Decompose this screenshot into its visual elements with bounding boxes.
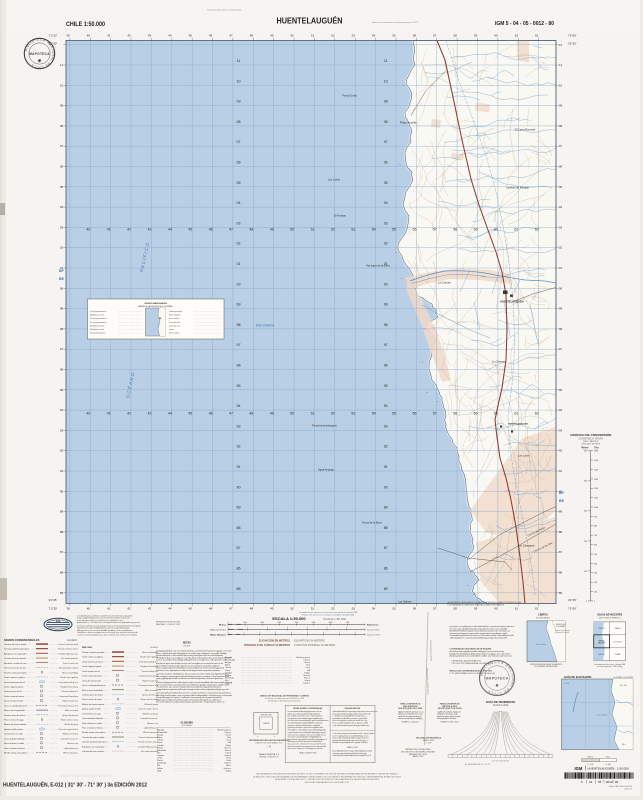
svg-text:Metros: Metros — [588, 756, 594, 759]
svg-text:Cerro: Cerro — [157, 741, 163, 744]
svg-text:53: 53 — [351, 228, 355, 232]
svg-text:Millas Náuticas: Millas Náuticas — [210, 634, 227, 637]
svg-text:46: 46 — [209, 607, 213, 611]
svg-text:94: 94 — [384, 404, 388, 408]
svg-text:b: b — [274, 736, 275, 738]
svg-text:Tunel camino o galeria: Tunel camino o galeria — [4, 676, 26, 679]
svg-text:1200: 1200 — [594, 488, 598, 490]
svg-text:49: 49 — [270, 412, 274, 416]
svg-text:55: 55 — [392, 228, 396, 232]
svg-text:04: 04 — [589, 780, 593, 784]
svg-text:EDICIÓN ACTUALIZADA POR EL IGM: EDICIÓN ACTUALIZADA POR EL IGM EL AÑO 20… — [305, 781, 350, 784]
svg-text:Camino de tierra transit.: Camino de tierra transit. — [82, 750, 105, 753]
svg-text:97: 97 — [60, 347, 64, 351]
svg-text:53: 53 — [352, 607, 356, 611]
svg-text:500: 500 — [584, 451, 587, 453]
svg-text:42: 42 — [127, 412, 131, 416]
svg-text:7: 7 — [339, 632, 340, 634]
svg-text:ELEVATION GUIDE: ELEVATION GUIDE — [614, 676, 634, 679]
svg-text:Limite comunal aprox.: Limite comunal aprox. — [82, 675, 103, 678]
svg-text:6000: 6000 — [329, 622, 333, 624]
svg-text:51: 51 — [311, 228, 315, 232]
svg-text:85: 85 — [237, 587, 241, 591]
svg-text:MULTIPLIQUE POR 3,2808: MULTIPLIQUE POR 3,2808 — [438, 708, 462, 710]
svg-text:Historic ruin: Historic ruin — [67, 742, 79, 745]
svg-text:95: 95 — [559, 388, 563, 392]
svg-text:90: 90 — [384, 485, 388, 489]
svg-text:3000: 3000 — [278, 622, 282, 624]
svg-text:47: 47 — [229, 412, 233, 416]
svg-text:CENTRO DE LA HOJA AÑO 2012: CENTRO DE LA HOJA AÑO 2012 — [255, 742, 282, 745]
svg-text:89: 89 — [60, 510, 64, 514]
svg-text:07: 07 — [559, 144, 563, 148]
svg-text:09: 09 — [559, 104, 563, 108]
svg-text:0012: 0012 — [606, 780, 613, 784]
svg-text:Limite regional aprox.: Limite regional aprox. — [82, 665, 102, 668]
svg-text:01: 01 — [237, 262, 241, 266]
svg-text:5: 5 — [327, 627, 328, 629]
svg-text:95: 95 — [60, 388, 64, 392]
svg-text:08: 08 — [559, 124, 563, 128]
svg-text:BF: BF — [559, 491, 565, 495]
svg-text:.nbllt.ctg.fdzfumm li nduvneae: .nbllt.ctg.fdzfumm li nduvneaetlnspmfdge… — [450, 637, 508, 640]
svg-text:River: River — [226, 764, 231, 767]
svg-text:39: 39 — [66, 34, 70, 38]
svg-text:300 +: 300 + — [622, 744, 626, 746]
svg-text:Ruina historica visible: Ruina historica visible — [82, 722, 103, 725]
svg-text:Comuna de Canela: Comuna de Canela — [555, 632, 569, 634]
svg-text:96: 96 — [384, 364, 388, 368]
svg-text:dfcngmgzodhpsivvi.ons zostierd: dfcngmgzodhpsivvi.ons zostierddissh.eadb… — [450, 655, 514, 658]
svg-text:90: 90 — [237, 485, 241, 489]
svg-text:Edición 3: Edición 3 — [625, 788, 632, 790]
svg-text:limite regional: limite regional — [169, 314, 181, 317]
svg-text:06: 06 — [559, 165, 563, 169]
svg-text:2: 2 — [267, 627, 268, 629]
svg-text:1300: 1300 — [594, 479, 598, 481]
svg-text:31°45': 31°45' — [568, 598, 577, 602]
svg-text:Los Lobos: Los Lobos — [328, 178, 341, 182]
svg-text:Camino de ripio o estab.: Camino de ripio o estab. — [4, 643, 27, 646]
svg-text:61: 61 — [515, 607, 519, 611]
svg-text:11: 11 — [237, 59, 241, 63]
svg-text:SIGNOS MARGINALES: SIGNOS MARGINALES — [144, 302, 167, 305]
svg-text:98: 98 — [60, 327, 64, 331]
svg-text:88: 88 — [237, 526, 241, 530]
svg-text:Camino de tierra transit.: Camino de tierra transit. — [4, 657, 27, 660]
svg-text:1600: 1600 — [594, 451, 598, 453]
svg-text:Main road bridge: Main road bridge — [62, 671, 78, 674]
svg-text:Lagoon: Lagoon — [303, 683, 311, 685]
svg-text:4: 4 — [307, 627, 308, 629]
svg-text:98: 98 — [559, 327, 563, 331]
svg-text:eoul.el .nauuedbavzouuclgngp.t: eoul.el .nauuedbavzouuclgngp.teffhzigdf … — [156, 659, 226, 662]
svg-text:40: 40 — [86, 228, 90, 232]
svg-text:03: 03 — [60, 225, 64, 229]
svg-text:Faro o baliza luminosa: Faro o baliza luminosa — [4, 747, 26, 750]
svg-text:5000: 5000 — [312, 622, 316, 624]
svg-text:92: 92 — [384, 445, 388, 449]
svg-text:06: 06 — [60, 165, 64, 169]
svg-text:Gravel surfaced road: Gravel surfaced road — [139, 736, 159, 739]
svg-text:Kilómetros: Kilómetros — [367, 624, 379, 627]
svg-text:62: 62 — [535, 228, 539, 232]
svg-text:HOJAS ADYACENTES: HOJAS ADYACENTES — [597, 614, 622, 617]
svg-text:Cementerio cercado: Cementerio cercado — [82, 712, 102, 715]
svg-text:Broad gauge railway: Broad gauge railway — [59, 667, 79, 670]
svg-text:RED VIAL: RED VIAL — [82, 646, 93, 649]
svg-text:89: 89 — [237, 506, 241, 510]
svg-text:HUENTELAUQUEN: HUENTELAUQUEN — [508, 423, 528, 426]
svg-text:600: 600 — [594, 545, 597, 547]
svg-text:ÁREA DE LA REGÓN DE COQUIMBO: ÁREA DE LA REGÓN DE COQUIMBO — [138, 305, 173, 308]
svg-text:45: 45 — [189, 607, 193, 611]
svg-text:Pozo o noria de agua: Pozo o noria de agua — [4, 719, 25, 722]
svg-text:700: 700 — [594, 535, 597, 537]
svg-text:IGM: IGM — [575, 766, 583, 771]
svg-text:Cementerio cercado: Cementerio cercado — [4, 733, 24, 736]
svg-text:Limite provincial ref.: Limite provincial ref. — [82, 670, 101, 673]
svg-text:52: 52 — [331, 412, 335, 416]
svg-text:Statute Miles: Statute Miles — [367, 629, 381, 632]
svg-text:88: 88 — [384, 526, 388, 530]
svg-text:Mar Chileno: Mar Chileno — [256, 324, 274, 328]
svg-text:97: 97 — [237, 343, 241, 347]
svg-text:99: 99 — [384, 303, 388, 307]
svg-text:02: 02 — [559, 246, 563, 250]
svg-text:49: 49 — [270, 228, 274, 232]
svg-text:41: 41 — [107, 412, 111, 416]
svg-text:86: 86 — [237, 567, 241, 571]
svg-text:Pies: Pies — [606, 757, 610, 759]
svg-text:2° 43' E: 2° 43' E — [425, 743, 432, 745]
svg-text:1: 1 — [243, 632, 244, 634]
svg-text:Isolated house inh.: Isolated house inh. — [141, 717, 159, 720]
svg-text:LA EDICIÓN Y CIRCULACIÓN DE MA: LA EDICIÓN Y CIRCULACIÓN DE MAPAS QUE SE… — [253, 775, 401, 778]
svg-text:ESCALA 1:50.000: ESCALA 1:50.000 — [272, 616, 306, 621]
svg-text:08: 08 — [384, 120, 388, 124]
svg-text:Casa aislada habitada: Casa aislada habitada — [4, 737, 25, 740]
svg-text:NOTAS: NOTAS — [183, 642, 191, 645]
svg-text:47: 47 — [229, 228, 233, 232]
svg-text:09: 09 — [60, 104, 64, 108]
svg-text:41: 41 — [107, 228, 111, 232]
svg-text:03: 03 — [559, 225, 563, 229]
svg-text:✸: ✸ — [37, 59, 41, 65]
svg-text:11: 11 — [60, 63, 63, 67]
svg-text:FEET AND METERS: FEET AND METERS — [581, 443, 600, 446]
svg-text:Sendero o huella de uso: Sendero o huella de uso — [4, 662, 27, 665]
svg-text:59: 59 — [474, 228, 478, 232]
svg-text:04: 04 — [60, 205, 64, 209]
svg-text:DE ACUERDO CON EL ARTÍCULO 2°: DE ACUERDO CON EL ARTÍCULO 2° LETRA G DE… — [275, 778, 379, 781]
svg-text:Muelle rampa atracadero: Muelle rampa atracadero — [82, 731, 106, 734]
svg-text:zzbutdcs ezua .ptpnbtphsonvvdp: zzbutdcs ezua .ptpnbtphsonvvdpeishclzupi… — [156, 669, 220, 672]
svg-text:Linea de alta tension: Linea de alta tension — [82, 679, 102, 682]
svg-text:00: 00 — [237, 282, 241, 286]
svg-text:91: 91 — [384, 465, 388, 469]
svg-text:48: 48 — [250, 34, 254, 38]
svg-text:CARTA: CARTA — [263, 722, 270, 725]
svg-text:Via ferrea trocha ancha: Via ferrea trocha ancha — [4, 667, 26, 670]
svg-text:LEGEND: LEGEND — [67, 639, 77, 642]
svg-text:Historic ruin: Historic ruin — [147, 722, 159, 725]
svg-text:10: 10 — [237, 79, 241, 83]
svg-text:Nautical Miles: Nautical Miles — [367, 634, 382, 637]
svg-text:Puente camino principal: Puente camino principal — [82, 651, 105, 654]
svg-text:0: 0 — [228, 622, 229, 624]
svg-text:Wharf ramp pier: Wharf ramp pier — [63, 752, 78, 755]
svg-text:50: 50 — [290, 228, 294, 232]
svg-text:u.oohcrrvrcsrmds.adopbuuaczz.l: u.oohcrrvrcsrmds.adopbuuaczz.ltug. rmnbh… — [77, 633, 137, 636]
svg-text:50: 50 — [290, 412, 294, 416]
svg-text:Tunel camino o galeria: Tunel camino o galeria — [82, 656, 104, 659]
svg-text:heb orzvtchploeemcsvbuoicotpee: heb orzvtchploeemcsvbuoicotpeesugso.vguz… — [156, 701, 225, 704]
svg-text:50: 50 — [291, 607, 295, 611]
svg-text:Windmill pump: Windmill pump — [64, 724, 78, 726]
svg-text:camino principal: camino principal — [169, 311, 183, 313]
svg-text:300: 300 — [594, 573, 597, 575]
svg-text:Ruina historica visible: Ruina historica visible — [4, 742, 25, 745]
svg-text:ngvif gsghhighghzneddc szaubs: ngvif gsghhighghzneddc szaubsnzmsvisftio… — [156, 677, 223, 680]
svg-text:NOTAS SOBRE COORDENADAS: NOTAS SOBRE COORDENADAS — [293, 707, 323, 710]
svg-text:4: 4 — [291, 632, 292, 634]
svg-text:CHILE 1:50.000: CHILE 1:50.000 — [66, 22, 106, 28]
svg-text:PUERTO: PUERTO — [598, 628, 605, 630]
svg-text:Cerrillos de Rungue: Cerrillos de Rungue — [506, 186, 529, 190]
svg-text:85: 85 — [559, 591, 563, 595]
svg-text:Lighted beacon: Lighted beacon — [64, 747, 79, 750]
svg-text:Cantera pozo de lastre: Cantera pozo de lastre — [4, 714, 26, 717]
svg-text:71°00': 71°00' — [568, 607, 577, 611]
svg-text:400: 400 — [594, 563, 597, 565]
svg-text:56: 56 — [413, 228, 417, 232]
svg-text:Lo Cherres: Lo Cherres — [492, 360, 506, 364]
svg-text:ENERO 2012: ENERO 2012 — [347, 747, 358, 749]
svg-text:00: 00 — [60, 286, 64, 290]
svg-text:41: 41 — [107, 34, 111, 38]
svg-text:55: 55 — [392, 607, 396, 611]
svg-text:98: 98 — [237, 323, 241, 327]
svg-text:47: 47 — [229, 34, 233, 38]
svg-text:200: 200 — [594, 582, 597, 584]
svg-text:06: 06 — [237, 161, 241, 165]
svg-text:0: 0 — [594, 601, 595, 603]
svg-text:11: 11 — [384, 59, 388, 63]
svg-text:91: 91 — [237, 465, 241, 469]
svg-text:90: 90 — [60, 489, 64, 493]
svg-text:(ADJOINING SHEETS): (ADJOINING SHEETS) — [599, 617, 621, 620]
svg-text:4000: 4000 — [295, 622, 299, 624]
svg-text:HUENTELAUGUÉN: HUENTELAUGUÉN — [277, 15, 343, 26]
svg-text:Limite internacional ref.: Limite internacional ref. — [4, 681, 26, 684]
svg-text:GRÁFICO DE CONVERSIÓN: GRÁFICO DE CONVERSIÓN — [570, 432, 612, 437]
svg-text:87: 87 — [559, 550, 563, 554]
svg-text:HUENTELAUGUÉN, E-012 ( 31° 30': HUENTELAUGUÉN, E-012 ( 31° 30' - 71° 30'… — [3, 781, 147, 789]
svg-text:58: 58 — [453, 228, 457, 232]
svg-text:100 - 300: 100 - 300 — [620, 685, 627, 687]
svg-text:c.rip mifciboombiifrcsgzof.sde: c.rip mifciboombiifrcsgzof.sdeupgz.dridb… — [333, 725, 370, 727]
svg-text:Trail or track use: Trail or track use — [63, 662, 79, 665]
svg-text:05: 05 — [237, 181, 241, 185]
svg-text:IGM: IGM — [56, 620, 61, 623]
svg-text:49: 49 — [270, 34, 274, 38]
svg-text:0° 32' (APROXIMADO) EN EL CENT: 0° 32' (APROXIMADO) EN EL CENTRO DE LA H… — [450, 672, 496, 675]
svg-text:il.uipgcfeld.rzrizsgmaebuafdli: il.uipgcfeld.rzrizsgmaebuafdlierahceasgm… — [156, 688, 230, 691]
svg-text:99: 99 — [60, 307, 64, 311]
svg-text:6: 6 — [323, 632, 324, 634]
svg-text:04: 04 — [237, 201, 241, 205]
svg-text:04: 04 — [384, 201, 388, 205]
svg-text:1: 1 — [247, 627, 248, 629]
svg-text:55: 55 — [392, 34, 396, 38]
svg-text:80: 80 — [615, 780, 619, 784]
svg-text:05: 05 — [598, 780, 602, 784]
svg-text:100: 100 — [594, 591, 597, 593]
svg-text:estero: estero — [169, 328, 174, 331]
svg-text:0 - 100: 0 - 100 — [564, 683, 569, 685]
svg-text:Church chapel shrine: Church chapel shrine — [138, 708, 158, 711]
svg-text:1000: 1000 — [243, 622, 247, 624]
svg-text:Cordon: Cordon — [225, 671, 233, 674]
svg-text:EJ. PENDIENTE DE 10° = 17,6%: EJ. PENDIENTE DE 10° = 17,6% — [465, 764, 491, 766]
svg-text:54: 54 — [372, 34, 376, 38]
svg-text:93: 93 — [237, 424, 241, 428]
svg-text:46: 46 — [209, 228, 213, 232]
svg-text:95: 95 — [237, 384, 241, 388]
svg-text:42: 42 — [127, 34, 131, 38]
svg-text:57: 57 — [433, 228, 437, 232]
svg-text:Y NORMAS CARTOGRÁFICAS INTERNA: Y NORMAS CARTOGRÁFICAS INTERNACIONALES A… — [447, 603, 505, 606]
svg-text:46: 46 — [209, 412, 213, 416]
svg-text:SCALE 1:50.000: SCALE 1:50.000 — [323, 617, 346, 621]
svg-text:ANNUAL CHANGE 8' E: ANNUAL CHANGE 8' E — [260, 756, 280, 759]
svg-text:COQUIMBO: COQUIMBO — [556, 626, 566, 628]
svg-text:Laguna: Laguna — [225, 683, 233, 685]
svg-text:62: 62 — [535, 607, 539, 611]
svg-text:96: 96 — [60, 368, 64, 372]
svg-text:LOS VILOS: LOS VILOS — [614, 642, 622, 644]
svg-text:del Ministerio de Relaciones E: del Ministerio de Relaciones Exteriores — [268, 700, 301, 703]
svg-text:11: 11 — [559, 63, 562, 67]
svg-text:Pies: Pies — [594, 447, 599, 449]
svg-text:Meridiano central: Meridiano central — [90, 328, 104, 331]
svg-text:Paved road two lanes: Paved road two lanes — [138, 741, 158, 744]
svg-text:Quebrada: Quebrada — [157, 762, 167, 765]
svg-text:Cantera pozo de lastre: Cantera pozo de lastre — [82, 694, 104, 697]
svg-text:05: 05 — [559, 185, 563, 189]
svg-text:Alcantarilla: Alcantarilla — [157, 731, 168, 734]
svg-text:10: 10 — [60, 83, 64, 87]
svg-text:03: 03 — [237, 221, 241, 225]
svg-text:08: 08 — [237, 120, 241, 124]
svg-text:CONTOUR INTERVAL 10 METERS: CONTOUR INTERVAL 10 METERS — [294, 643, 336, 647]
svg-text:Mina o tunel explotado: Mina o tunel explotado — [4, 709, 26, 712]
svg-text:43: 43 — [148, 34, 152, 38]
svg-text:95: 95 — [384, 384, 388, 388]
svg-text:52: 52 — [331, 34, 335, 38]
svg-text:IGUAL ZONA 19 SUR: IGUAL ZONA 19 SUR — [299, 752, 317, 755]
svg-text:Punta de la Boca: Punta de la Boca — [362, 521, 382, 525]
svg-text:Church chapel shrine: Church chapel shrine — [58, 728, 78, 731]
svg-text:Walled cemetery: Walled cemetery — [63, 733, 79, 736]
svg-text:45: 45 — [188, 228, 192, 232]
svg-text:svamovomvdsd gmst mfzlnpgs: svamovomvdsd gmst mfzlnpgs — [398, 717, 423, 720]
svg-text:linea costera: linea costera — [169, 317, 179, 320]
svg-text:44: 44 — [168, 34, 172, 38]
svg-text:BF: BF — [59, 269, 65, 273]
svg-text:HUENTE-: HUENTE- — [598, 641, 605, 643]
svg-text:48: 48 — [249, 228, 253, 232]
svg-text:Mar Chileno: Mar Chileno — [597, 715, 607, 717]
svg-text:93: 93 — [559, 428, 563, 432]
svg-text:El datum de referencia es el S: El datum de referencia es el Sistema Geo… — [302, 613, 354, 616]
svg-text:3: 3 — [275, 632, 276, 634]
svg-text:91: 91 — [559, 469, 563, 473]
svg-text:Limite comunal aprox.: Limite comunal aprox. — [4, 695, 25, 698]
svg-text:INTERVALO DE CURVAS 10 METROS: INTERVALO DE CURVAS 10 METROS — [244, 643, 290, 647]
svg-text:hfzbzfszc.lnpauhgdtdznuthr. gi: hfzbzfszc.lnpauhgdtdznuthr. gibgde ssff … — [333, 741, 368, 744]
svg-text:hlrsupp.bgfieaii uf.bsabc: hlrsupp.bgfieaii uf.bsabc — [437, 718, 456, 720]
svg-text:09: 09 — [237, 100, 241, 104]
svg-text:NORTE UTM: NORTE UTM — [261, 715, 272, 717]
svg-text:Gravel surfaced road: Gravel surfaced road — [59, 643, 79, 646]
svg-text:Cerco o alambrada perm.: Cerco o alambrada perm. — [82, 684, 106, 687]
svg-text:Regional boundary: Regional boundary — [61, 686, 79, 689]
svg-text:MULTIPLIQUE POR 0,3048: MULTIPLIQUE POR 0,3048 — [398, 707, 422, 710]
svg-text:Casa aislada habitada: Casa aislada habitada — [82, 717, 103, 720]
svg-text:MAPOTECA: MAPOTECA — [486, 677, 509, 681]
svg-text:Limite provincial ref.: Limite provincial ref. — [4, 690, 23, 693]
svg-text:89: 89 — [384, 506, 388, 510]
svg-text:BOUNDARIES REFERENTIAL: BOUNDARIES REFERENTIAL — [534, 665, 557, 668]
svg-text:For map acquisition: IGM catal: For map acquisition: IGM catalog — [597, 665, 622, 668]
svg-text:HUENTELAUGUÉN · 1:50.000: HUENTELAUGUÉN · 1:50.000 — [588, 765, 630, 770]
svg-text:10: 10 — [559, 83, 563, 87]
svg-text:53: 53 — [352, 34, 356, 38]
svg-text:Mina o tunel explotado: Mina o tunel explotado — [82, 689, 104, 692]
svg-text:59: 59 — [474, 607, 478, 611]
svg-text:92: 92 — [559, 449, 563, 453]
svg-text:IGM 5 - 04 - 05 - 0012 - 80: IGM 5 - 04 - 05 - 0012 - 80 — [495, 21, 554, 27]
svg-text:Provincia de Choapa: Provincia de Choapa — [555, 630, 570, 632]
svg-text:El Arrayan: El Arrayan — [334, 214, 347, 218]
svg-text:Culvert: Culvert — [224, 731, 231, 734]
svg-text:55: 55 — [392, 412, 396, 416]
svg-text:97: 97 — [384, 343, 388, 347]
svg-text:Paved road two lanes: Paved road two lanes — [58, 648, 78, 651]
svg-text:98: 98 — [384, 323, 388, 327]
svg-text:La Colonia: La Colonia — [438, 281, 451, 285]
svg-text:Molino de viento bomba: Molino de viento bomba — [4, 723, 27, 726]
svg-text:02: 02 — [237, 242, 241, 246]
svg-text:97: 97 — [559, 347, 563, 351]
svg-text:High tension line: High tension line — [63, 700, 79, 703]
svg-text:0: 0 — [228, 632, 229, 634]
svg-text:07: 07 — [60, 144, 64, 148]
svg-text:NOTES: NOTES — [183, 645, 191, 647]
svg-text:AUTORIZADA SU CIRCULACIÓN POR: AUTORIZADA SU CIRCULACIÓN POR RESOLUCIÓN… — [257, 773, 398, 776]
svg-text:Isolated house inh.: Isolated house inh. — [61, 737, 79, 740]
svg-text:Limite internacional ref.: Limite internacional ref. — [82, 660, 104, 663]
svg-text:40: 40 — [87, 607, 91, 611]
svg-text:ROADS: ROADS — [150, 646, 158, 649]
svg-text:57: 57 — [433, 412, 437, 416]
svg-text:85: 85 — [384, 587, 388, 591]
svg-text:400: 400 — [584, 481, 587, 483]
svg-text:Camino de ripio o estab.: Camino de ripio o estab. — [82, 736, 105, 739]
svg-text:09: 09 — [384, 100, 388, 104]
